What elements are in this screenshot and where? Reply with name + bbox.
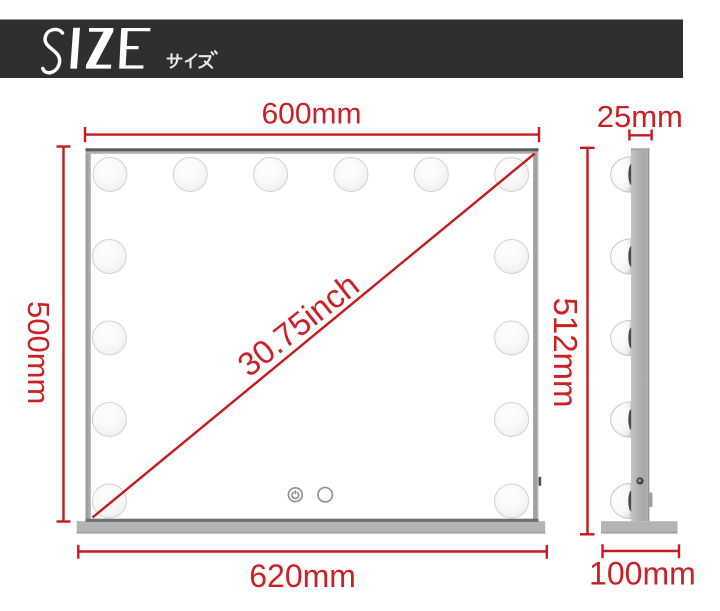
svg-text:600mm: 600mm [261, 98, 361, 131]
svg-text:25mm: 25mm [597, 99, 683, 134]
svg-text:500mm: 500mm [21, 301, 56, 404]
svg-text:620mm: 620mm [249, 558, 356, 594]
svg-text:100mm: 100mm [589, 556, 696, 592]
svg-text:512mm: 512mm [547, 298, 584, 408]
